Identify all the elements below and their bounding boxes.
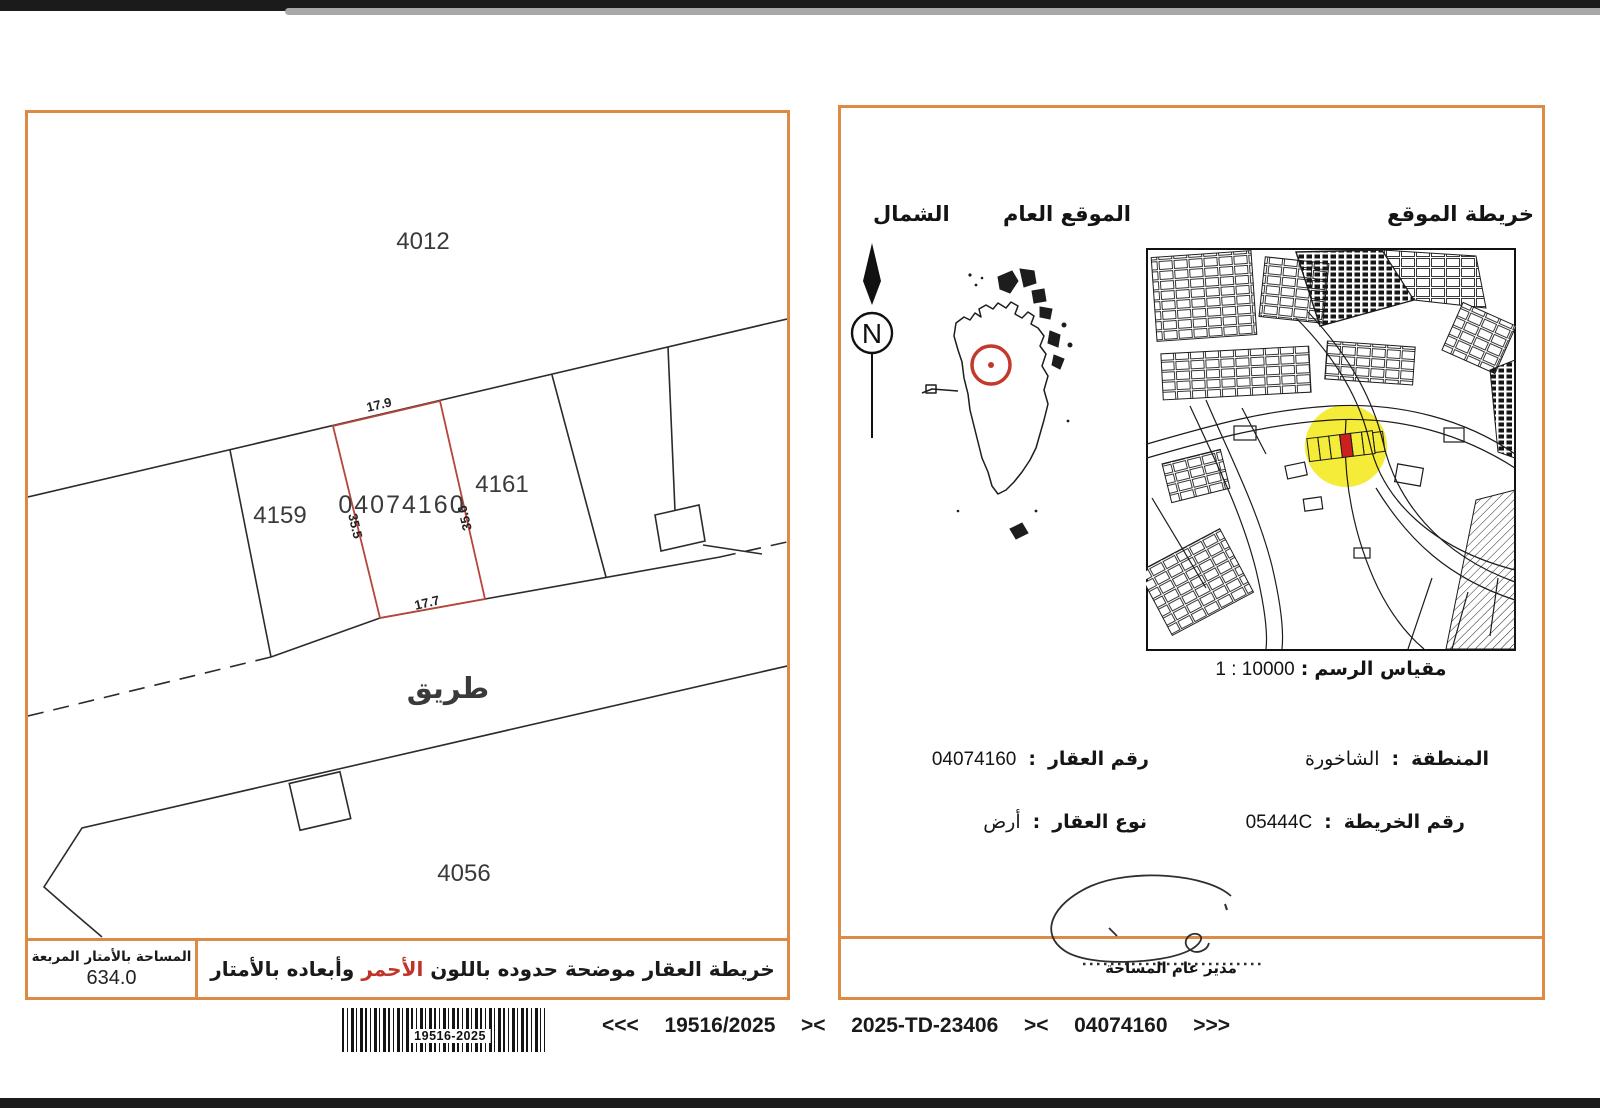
notched-boundary: [668, 347, 675, 511]
ref-separator: ><: [1024, 1014, 1049, 1038]
barcode-text: 19516-2025: [409, 1029, 491, 1043]
signature-stroke: [1051, 875, 1231, 961]
map-number-label: رقم الخريطة: [1344, 811, 1465, 833]
map-number-field: رقم الخريطة : 05444C: [1246, 811, 1465, 834]
scale-separator: :: [1301, 658, 1309, 680]
region-label: المنطقة: [1411, 748, 1489, 770]
parcel-4012-label: 4012: [396, 228, 449, 255]
scale-ratio: 1 : 10000: [1215, 659, 1294, 680]
parcel-number-label: رقم العقار: [1048, 748, 1149, 770]
parcel-4161-boundary: [552, 375, 606, 577]
location-ring-dot: [988, 362, 994, 368]
property-type-field: نوع العقار : أرض: [983, 811, 1147, 833]
region-value: الشاخورة: [1305, 748, 1380, 770]
plot-map-panel: 4012 4159 4161 4056 04074160 طريق 17.9 1…: [25, 110, 790, 1000]
road-structure: [289, 772, 350, 830]
colon: :: [1392, 748, 1400, 770]
location-map-title: خريطة الموقع: [1387, 202, 1534, 226]
ref-open-arrows: <<<: [602, 1014, 639, 1038]
area-value: 634.0: [86, 967, 136, 990]
ref-case-number: 19516/2025: [664, 1014, 775, 1038]
parcel-number-field: رقم العقار : 04074160: [932, 748, 1149, 771]
region-field: المنطقة : الشاخورة: [1305, 748, 1489, 770]
signature: [993, 858, 1293, 1003]
road-top-solid: [271, 557, 720, 657]
property-type-label: نوع العقار: [1052, 811, 1147, 833]
area-label: المساحة بالأمتار المربعة: [32, 949, 192, 965]
map-number-value: 05444C: [1246, 812, 1313, 834]
dim-right: 35.6: [454, 504, 474, 532]
property-type-value: أرض: [983, 811, 1020, 833]
road-label: طريق: [407, 671, 489, 705]
window-bottom-bar: [0, 1098, 1600, 1108]
scale-label: مقياس الرسم: [1314, 658, 1446, 680]
ref-parcel-number: 04074160: [1074, 1014, 1167, 1038]
note-cell: خريطة العقار موضحة حدوده باللون الأحمر و…: [198, 941, 787, 997]
compass-n: N: [862, 318, 882, 349]
general-location-label: الموقع العام: [1003, 202, 1131, 226]
location-panel: خريطة الموقع الموقع العام الشمال N: [838, 105, 1545, 1000]
parcel-4161-label: 4161: [475, 471, 528, 498]
area-cell: المساحة بالأمتار المربعة 634.0: [28, 941, 198, 997]
ref-close-arrows: >>>: [1193, 1014, 1230, 1038]
boundary-notch-box: [655, 505, 705, 551]
colon: :: [1028, 748, 1036, 770]
barcode: 19516-2025: [342, 1008, 545, 1052]
bahrain-main-island: [954, 302, 1048, 494]
north-arrow-head: [863, 243, 881, 305]
colon: :: [1033, 811, 1041, 833]
plot-panel-footer: المساحة بالأمتار المربعة 634.0 خريطة الع…: [28, 938, 787, 997]
street-map: [1146, 248, 1516, 651]
document-page: 4012 4159 4161 4056 04074160 طريق 17.9 1…: [0, 0, 1600, 1108]
ref-transaction-number: 2025-TD-23406: [851, 1014, 998, 1038]
note-after: وأبعاده بالأمتار: [210, 957, 354, 981]
reference-row: <<< 19516/2025 >< 2025-TD-23406 >< 04074…: [602, 1014, 1230, 1038]
parcel-4056-label: 4056: [437, 860, 490, 887]
parcel-4159-boundary: [230, 450, 271, 657]
note-text: خريطة العقار موضحة حدوده باللون الأحمر و…: [210, 957, 775, 981]
note-before: خريطة العقار موضحة حدوده باللون: [430, 957, 774, 981]
bahrain-overview-map: [918, 261, 1088, 551]
map-dots: [957, 273, 1070, 512]
parcel-4159-label: 4159: [253, 502, 306, 529]
dim-bottom: 17.7: [413, 592, 441, 612]
road-bottom-line: [44, 666, 787, 937]
horizontal-scrollbar[interactable]: [285, 8, 1600, 15]
colon: :: [1324, 811, 1332, 833]
parcel-number-value: 04074160: [932, 749, 1017, 771]
north-label: الشمال: [873, 202, 950, 226]
map-scale: 1 : 10000 : مقياس الرسم: [1146, 658, 1516, 681]
ne-islands: [998, 269, 1072, 539]
ref-separator: ><: [801, 1014, 826, 1038]
cadastral-drawing: 4012 4159 4161 4056 04074160 طريق 17.9 1…: [28, 113, 787, 938]
note-red-word: الأحمر: [361, 957, 423, 981]
north-arrow-icon: N: [848, 241, 896, 441]
